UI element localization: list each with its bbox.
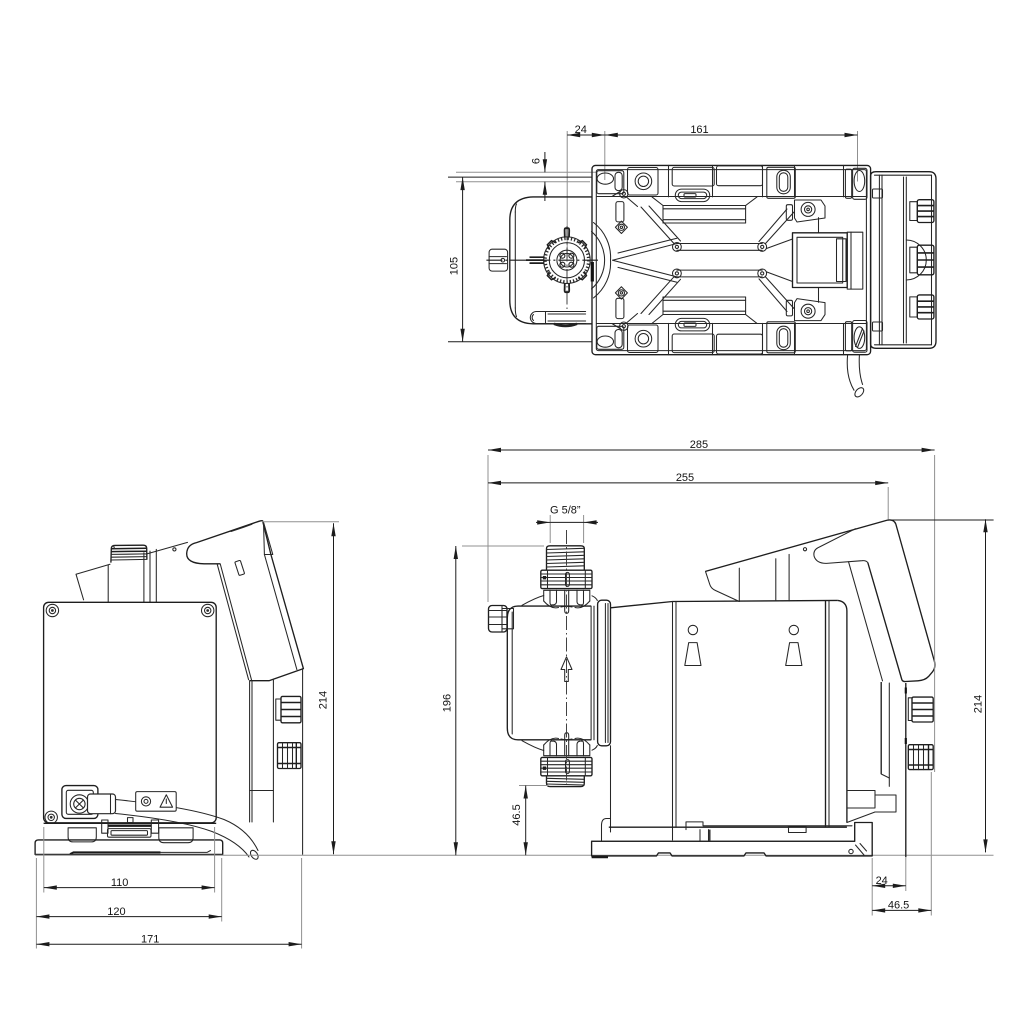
svg-text:196: 196 xyxy=(442,694,454,712)
svg-text:46.5: 46.5 xyxy=(511,804,523,825)
svg-text:171: 171 xyxy=(141,933,159,945)
svg-text:6: 6 xyxy=(531,158,543,164)
svg-text:G 5/8”: G 5/8” xyxy=(550,505,581,517)
svg-text:161: 161 xyxy=(690,124,708,136)
svg-text:214: 214 xyxy=(317,691,329,709)
svg-text:24: 24 xyxy=(575,124,587,136)
svg-text:255: 255 xyxy=(676,472,694,484)
svg-text:105: 105 xyxy=(448,257,460,275)
svg-text:214: 214 xyxy=(973,695,985,713)
svg-text:110: 110 xyxy=(111,877,129,889)
svg-text:120: 120 xyxy=(107,906,125,918)
svg-text:24: 24 xyxy=(876,875,888,887)
svg-text:285: 285 xyxy=(690,439,708,451)
svg-text:46.5: 46.5 xyxy=(888,900,909,912)
